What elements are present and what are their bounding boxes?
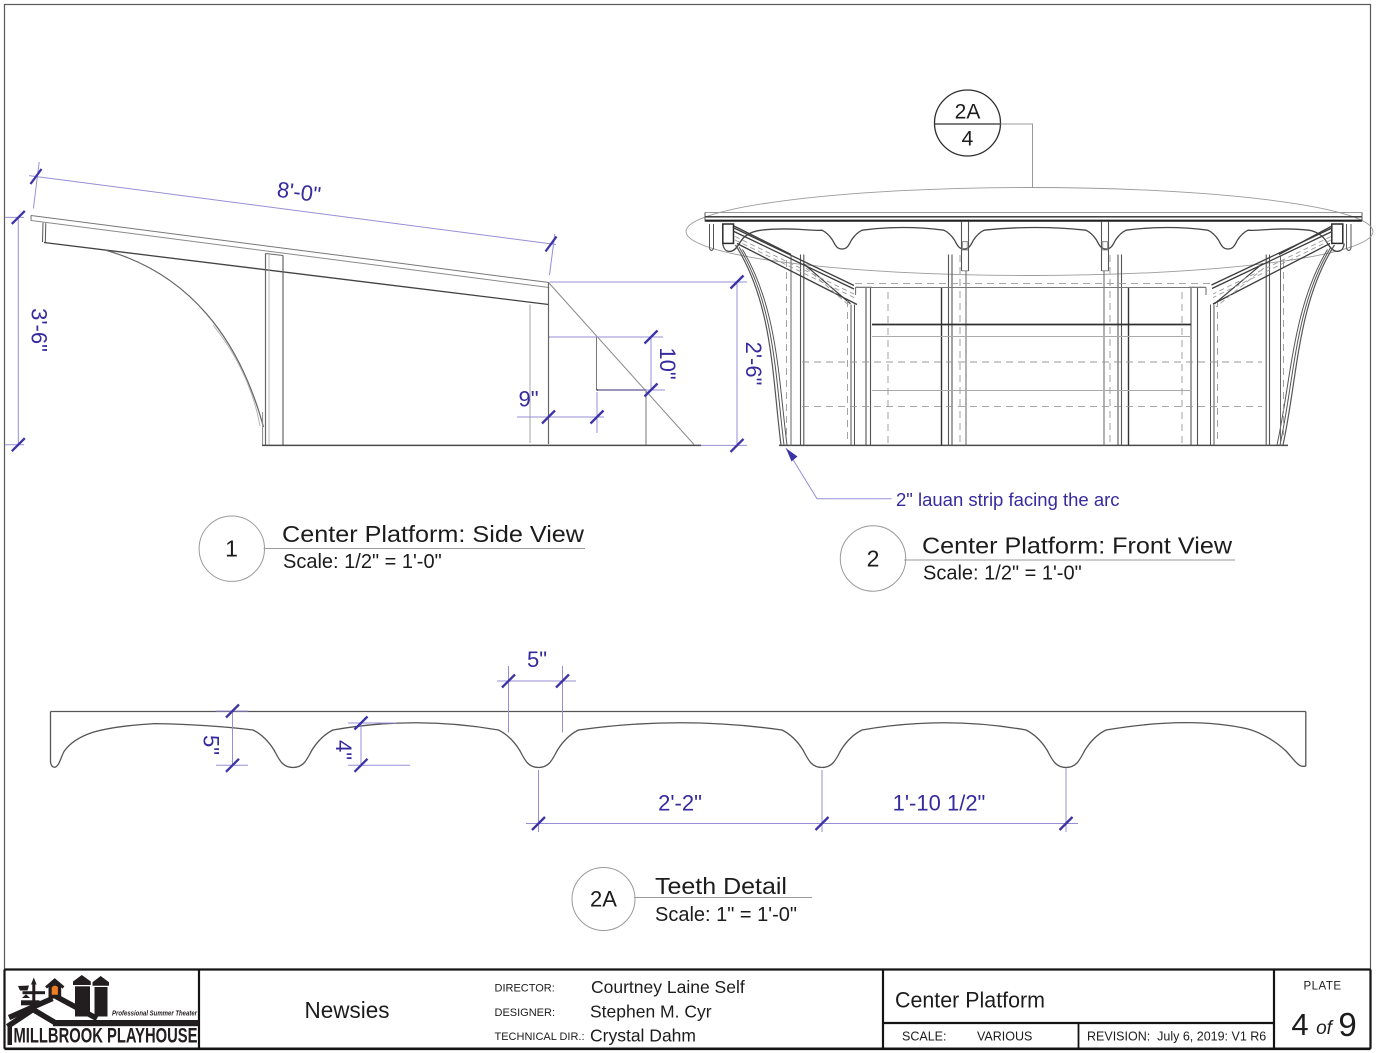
svg-text:9": 9" — [519, 387, 539, 412]
svg-text:MILLBROOK PLAYHOUSE: MILLBROOK PLAYHOUSE — [14, 1024, 198, 1048]
svg-text:1: 1 — [225, 536, 238, 562]
svg-text:3'-6": 3'-6" — [27, 308, 52, 352]
svg-text:Courtney Laine Self: Courtney Laine Self — [591, 977, 745, 997]
svg-text:PLATE: PLATE — [1303, 981, 1341, 993]
svg-text:Scale: 1/2" = 1'-0": Scale: 1/2" = 1'-0" — [923, 563, 1082, 585]
svg-text:of: of — [1316, 1018, 1334, 1039]
svg-text:5": 5" — [527, 647, 547, 672]
svg-text:REVISION: July 6, 2019: V1 R6: REVISION: July 6, 2019: V1 R6 — [1087, 1030, 1266, 1044]
svg-text:DESIGNER:: DESIGNER: — [495, 1007, 556, 1019]
svg-text:Scale: 1/2" = 1'-0": Scale: 1/2" = 1'-0" — [283, 551, 442, 573]
svg-text:Center Platform: Front View: Center Platform: Front View — [922, 533, 1232, 559]
svg-text:Newsies: Newsies — [305, 997, 390, 1023]
svg-text:2'-2": 2'-2" — [658, 791, 702, 816]
svg-text:Center Platform: Side View: Center Platform: Side View — [282, 521, 584, 547]
svg-text:2" lauan strip facing the arc: 2" lauan strip facing the arc — [896, 489, 1120, 510]
svg-text:Teeth Detail: Teeth Detail — [655, 873, 787, 899]
svg-text:Crystal Dahm: Crystal Dahm — [590, 1026, 696, 1046]
svg-text:4: 4 — [1291, 1007, 1308, 1042]
svg-text:2'-6": 2'-6" — [741, 342, 766, 386]
svg-text:5": 5" — [199, 735, 224, 755]
svg-text:10": 10" — [655, 347, 680, 379]
svg-text:9: 9 — [1338, 1006, 1356, 1043]
svg-text:Professional Summer Theater: Professional Summer Theater — [112, 1011, 198, 1018]
svg-text:TECHNICAL DIR.:: TECHNICAL DIR.: — [495, 1031, 585, 1043]
svg-text:DIRECTOR:: DIRECTOR: — [495, 983, 555, 995]
svg-text:2: 2 — [867, 546, 880, 572]
svg-text:4: 4 — [962, 128, 974, 151]
svg-text:1'-10 1/2": 1'-10 1/2" — [893, 791, 986, 816]
svg-text:Center Platform: Center Platform — [895, 988, 1045, 1013]
svg-text:Scale: 1" = 1'-0": Scale: 1" = 1'-0" — [655, 904, 797, 926]
svg-text:Stephen M. Cyr: Stephen M. Cyr — [590, 1002, 712, 1022]
svg-text:SCALE:: SCALE: — [902, 1030, 946, 1044]
svg-text:2A: 2A — [590, 887, 617, 912]
svg-text:VARIOUS: VARIOUS — [977, 1030, 1032, 1044]
svg-text:4": 4" — [331, 740, 356, 760]
svg-text:2A: 2A — [955, 101, 981, 124]
